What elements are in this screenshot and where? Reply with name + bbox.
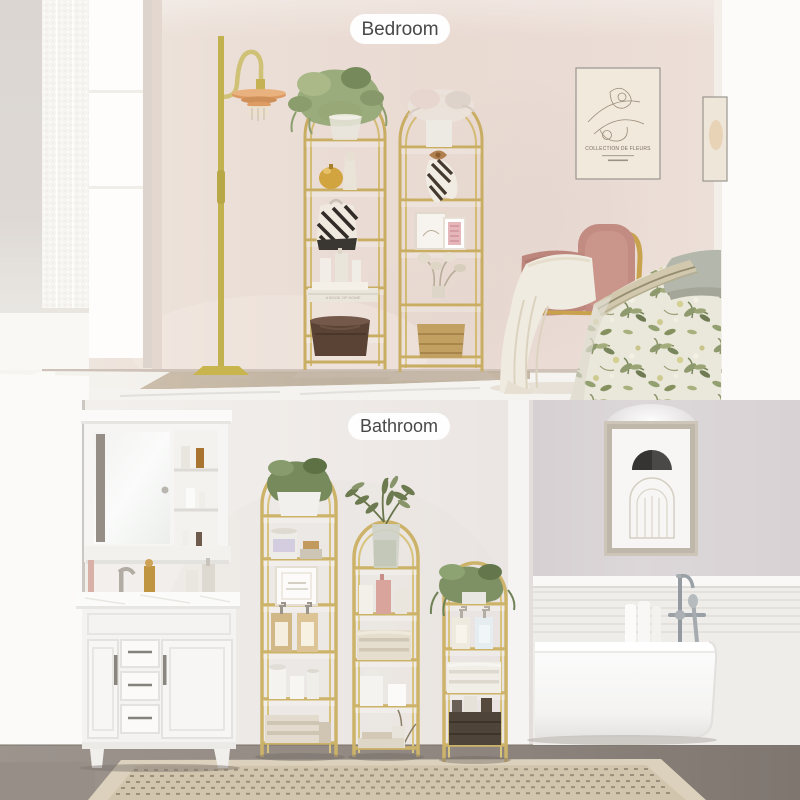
svg-text:Bathroom: Bathroom [360, 416, 438, 436]
svg-text:Bedroom: Bedroom [361, 19, 438, 40]
svg-text:A BOOK OF HOME: A BOOK OF HOME [326, 295, 361, 300]
svg-text:COLLECTION DE FLEURS: COLLECTION DE FLEURS [585, 146, 651, 152]
